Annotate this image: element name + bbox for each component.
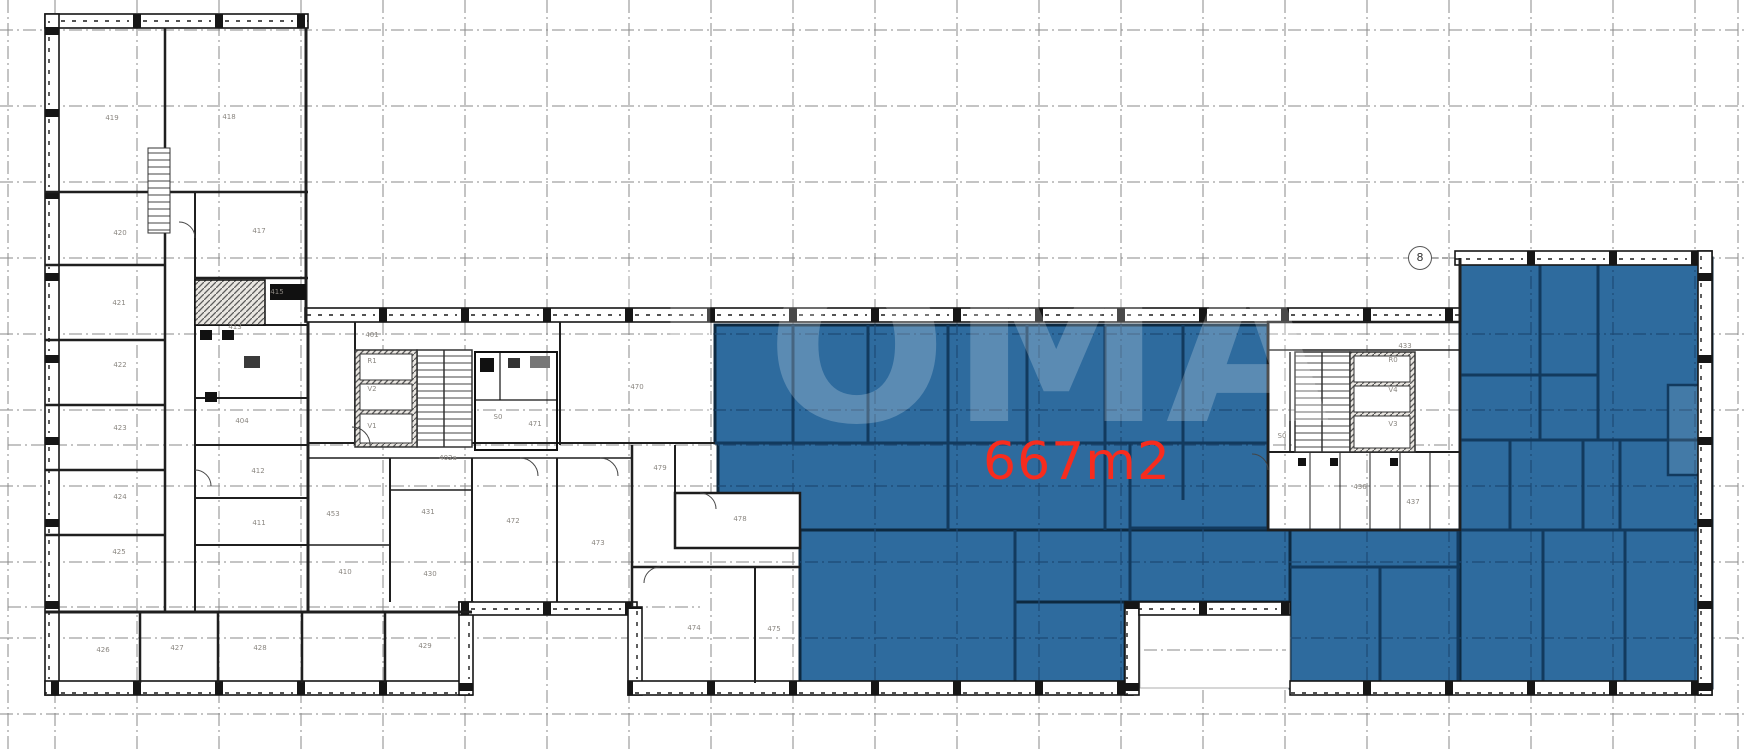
floor-plan-page: ТОМА 41941842041742141541342240442341242…: [0, 0, 1745, 753]
area-size-label: 667m2: [983, 436, 1171, 488]
floor-plan-drawing: [0, 0, 1745, 753]
grid-axis-bubble: 8: [1408, 246, 1432, 270]
